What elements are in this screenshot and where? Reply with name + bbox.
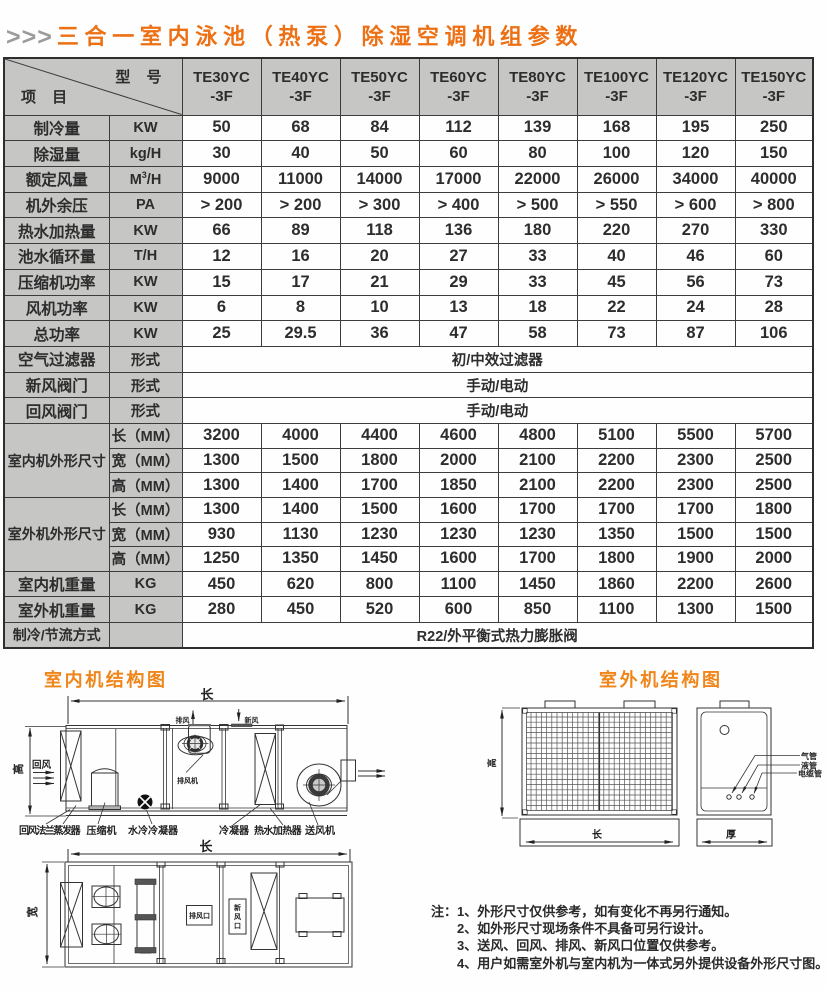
svg-text:气管: 气管 [800,751,817,761]
svg-text:送风机: 送风机 [304,824,335,837]
svg-text:回风法兰蒸发器: 回风法兰蒸发器 [19,824,82,837]
svg-text:排风: 排风 [176,716,190,725]
svg-text:热水加热器: 热水加热器 [254,824,303,837]
svg-text:新风: 新风 [245,716,259,725]
svg-text:长: 长 [200,688,214,702]
svg-text:回风: 回风 [32,760,52,771]
svg-text:厚: 厚 [726,829,736,841]
svg-text:排风机: 排风机 [177,776,198,785]
svg-text:排风口: 排风口 [189,911,210,920]
svg-text:口: 口 [234,922,241,930]
svg-text:新: 新 [234,903,241,912]
svg-text:高: 高 [11,764,25,775]
svg-text:压缩机: 压缩机 [87,824,117,837]
svg-text:电缆管: 电缆管 [798,769,822,779]
svg-text:长: 长 [592,828,603,841]
svg-text:水冷冷凝器: 水冷冷凝器 [127,824,179,837]
svg-text:冷凝器: 冷凝器 [219,824,250,837]
svg-text:长: 长 [199,839,213,854]
svg-text:风: 风 [234,912,241,921]
svg-text:高: 高 [486,758,497,767]
svg-text:宽: 宽 [25,907,39,919]
